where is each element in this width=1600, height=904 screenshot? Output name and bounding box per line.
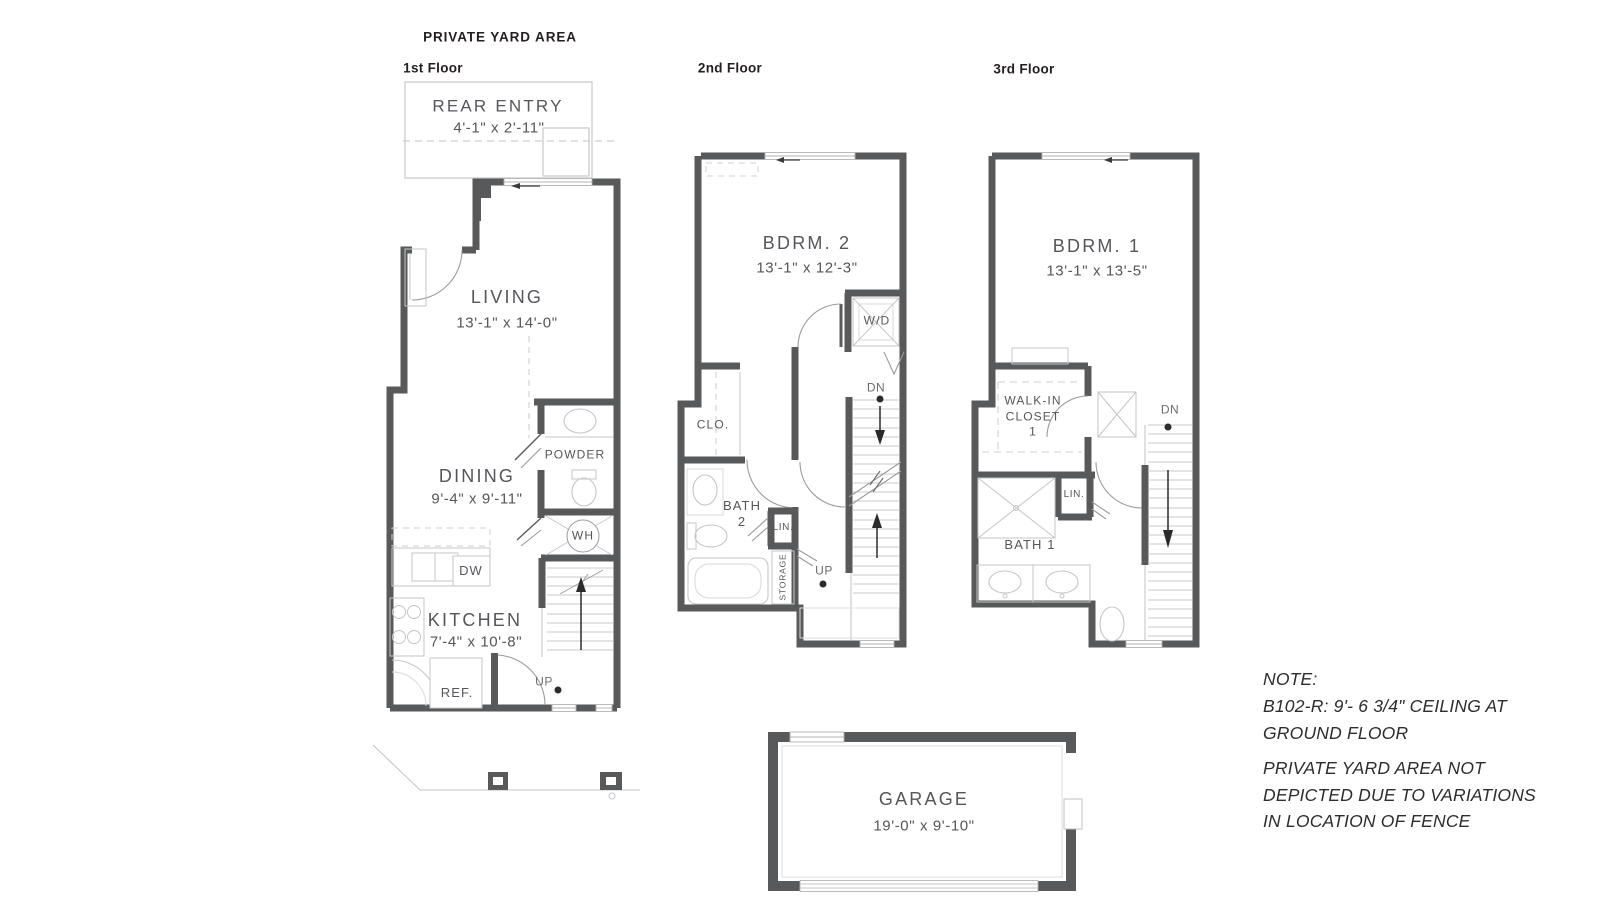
fence-line xyxy=(373,745,640,799)
label-walk-in-closet: WALK-IN CLOSET 1 xyxy=(1004,394,1061,441)
label-bath2: BATH 2 xyxy=(723,498,761,531)
label-bdrm2-dims: 13'-1" x 12'-3" xyxy=(756,260,857,279)
label-rear-entry: REAR ENTRY xyxy=(432,95,563,116)
label-washer-dryer: W/D xyxy=(864,314,891,329)
label-storage: STORAGE xyxy=(778,553,789,600)
label-refrigerator: REF. xyxy=(441,685,474,701)
label-bdrm1: BDRM. 1 xyxy=(1053,235,1141,258)
label-garage-dims: 19'-0" x 9'-10" xyxy=(873,818,974,837)
label-powder: POWDER xyxy=(545,448,606,463)
label-closet-floor2: CLO. xyxy=(697,418,729,433)
floor1-label: 1st Floor xyxy=(403,61,463,78)
label-living-dims: 13'-1" x 14'-0" xyxy=(456,315,557,334)
floorplan-page: PRIVATE YARD AREA 1st Floor 2nd Floor 3r… xyxy=(0,0,1600,904)
label-bdrm1-dims: 13'-1" x 13'-5" xyxy=(1046,263,1147,282)
label-water-heater: WH xyxy=(572,529,594,544)
label-linen-floor2: LIN. xyxy=(773,522,794,535)
label-living: LIVING xyxy=(471,286,543,309)
label-up-floor1: UP xyxy=(535,675,553,690)
note-body-ceiling: B102-R: 9'- 6 3/4" CEILING AT GROUND FLO… xyxy=(1263,693,1507,746)
floor2-label: 2nd Floor xyxy=(698,61,762,78)
label-bdrm2: BDRM. 2 xyxy=(763,232,851,255)
label-linen-floor3: LIN. xyxy=(1064,489,1085,502)
label-rear-entry-dims: 4'-1" x 2'-11" xyxy=(453,120,544,139)
garage-plan xyxy=(773,732,1082,892)
label-kitchen-dims: 7'-4" x 10'-8" xyxy=(430,634,522,653)
label-garage: GARAGE xyxy=(879,788,969,811)
floor2-plan xyxy=(681,153,904,648)
floor3-label: 3rd Floor xyxy=(993,62,1054,79)
label-dining: DINING xyxy=(439,465,515,488)
label-dn-floor3: DN xyxy=(1161,403,1179,418)
label-kitchen: KITCHEN xyxy=(428,609,522,632)
label-dining-dims: 9'-4" x 9'-11" xyxy=(431,491,522,510)
label-dishwasher: DW xyxy=(459,563,483,579)
note-body-yard: PRIVATE YARD AREA NOT DEPICTED DUE TO VA… xyxy=(1263,755,1536,835)
label-bath1: BATH 1 xyxy=(1004,537,1055,553)
note-heading: NOTE: xyxy=(1263,666,1317,693)
private-yard-title: PRIVATE YARD AREA xyxy=(423,30,577,47)
label-up-floor2: UP xyxy=(815,564,833,579)
label-dn-floor2: DN xyxy=(867,381,885,396)
